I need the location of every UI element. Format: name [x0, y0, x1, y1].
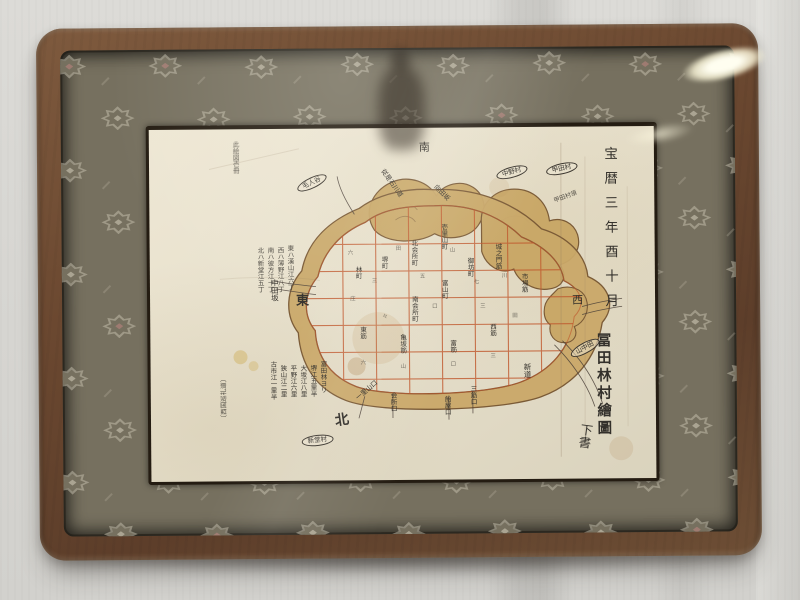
- map-label: 六: [348, 250, 354, 256]
- mat-motif: [727, 465, 738, 489]
- map-label: 三: [480, 303, 486, 309]
- mat-motif: [60, 470, 89, 494]
- map-title: 冨田林村繪圖: [594, 332, 611, 437]
- mat-dash: [488, 490, 496, 499]
- draft-note: 下書: [576, 423, 593, 450]
- mat-dash: [726, 124, 734, 133]
- map-label: 林町: [354, 266, 361, 279]
- map-label: 狭山江二里: [279, 365, 287, 398]
- map-label: 北会所町: [410, 240, 417, 266]
- mat-motif: [296, 521, 330, 537]
- map-label: 三: [372, 278, 378, 284]
- map-label: 六: [361, 360, 367, 366]
- mat-dash: [727, 332, 735, 341]
- map-label: 五: [420, 274, 426, 280]
- mat-motif: [677, 206, 711, 230]
- map-label: 三: [490, 353, 496, 359]
- map-label: 川: [502, 273, 508, 279]
- mat-dash: [102, 181, 110, 190]
- mat-motif: [392, 522, 426, 537]
- mat-motif: [60, 366, 89, 390]
- map-label: 庄: [350, 296, 356, 302]
- mat-motif: [148, 54, 182, 78]
- map-label: 西ハ薄野江八丁: [276, 247, 284, 293]
- mat-motif: [532, 51, 566, 75]
- map-label: 亀坂筋: [398, 334, 405, 354]
- mat-motif: [436, 53, 470, 77]
- mat-motif: [680, 518, 714, 537]
- compass-south: 南: [419, 142, 430, 154]
- mat-motif: [727, 361, 738, 385]
- mat-motif: [679, 414, 713, 438]
- map-date-column: 宝暦三年酉十月: [601, 146, 617, 318]
- map-paper: 宝暦三年酉十月 冨田林村繪圖 下書 東 北 西 南 中田坂東ハ漢山江六丁西ハ薄野…: [149, 126, 657, 482]
- mat-dash: [677, 73, 685, 82]
- mat-motif: [244, 55, 278, 79]
- mat-motif: [101, 210, 135, 234]
- mat-motif: [60, 262, 88, 286]
- map-label: 富山町: [440, 280, 447, 300]
- map-label: 会所口: [389, 392, 396, 412]
- map-label: 七: [474, 279, 480, 285]
- map-label: 平野江六里: [289, 365, 297, 398]
- map-label: 南会所町: [410, 296, 417, 322]
- mat-dash: [726, 228, 734, 237]
- mat-motif: [200, 523, 234, 536]
- mat-motif: [724, 49, 738, 73]
- mat-dash: [392, 491, 400, 500]
- mat-motif: [725, 153, 738, 177]
- map-label: 城之門筋: [494, 243, 501, 269]
- mat-dash: [678, 177, 686, 186]
- map-label: 東筋: [358, 326, 365, 339]
- mat-motif: [102, 314, 136, 338]
- mat-dash: [680, 385, 688, 394]
- mat-dash: [104, 389, 112, 398]
- compass-west: 西: [572, 295, 583, 307]
- mat-dash: [680, 488, 688, 497]
- map-label: 富田林ヨリ: [319, 361, 327, 394]
- mat-dash: [679, 281, 687, 290]
- map-label: 口: [451, 362, 457, 368]
- mat-motif: [103, 418, 137, 442]
- map-label: 〔西国巡礼道〕: [221, 376, 229, 422]
- mat-motif: [60, 54, 86, 78]
- mat-dash: [104, 493, 112, 502]
- map-label: 北ハ新堂江五丁: [256, 247, 264, 293]
- map-label: 富筋: [448, 340, 455, 353]
- mat-motif: [677, 102, 711, 126]
- mat-dash: [101, 77, 109, 86]
- mat-motif: [678, 310, 712, 334]
- mat-dash: [296, 492, 304, 501]
- wooden-picture-frame: 宝暦三年酉十月 冨田林村繪圖 下書 東 北 西 南 中田坂東ハ漢山江六丁西ハ薄野…: [36, 23, 762, 561]
- map-label: 古市江一里半: [269, 361, 277, 400]
- mat-dash: [197, 76, 205, 85]
- map-label: 御坊町: [466, 257, 473, 277]
- compass-north: 北: [334, 412, 350, 430]
- mat-dash: [293, 76, 301, 85]
- mat-motif: [101, 106, 135, 130]
- mat-dash: [581, 73, 589, 82]
- mat-motif: [726, 257, 738, 281]
- mat-motif: [60, 158, 87, 182]
- map-label: 壱里山町: [439, 224, 446, 250]
- mat-motif: [628, 52, 662, 76]
- map-label: 堺江五里半: [309, 365, 317, 398]
- map-label: 山: [401, 364, 407, 370]
- map-label: 東ハ漢山江六丁: [286, 245, 294, 291]
- mat-motif: [340, 52, 374, 76]
- mat-motif: [104, 522, 138, 537]
- mat-dash: [200, 492, 208, 501]
- map-label: 々: [382, 314, 388, 320]
- map-label: 堺町: [380, 256, 387, 269]
- mat-dash: [103, 285, 111, 294]
- mat-dash: [728, 436, 736, 445]
- map-label: 三筋口: [469, 385, 476, 405]
- map-label: 此絵図壱冊: [231, 141, 239, 174]
- mat-dash: [584, 489, 592, 498]
- mat-motif: [584, 520, 618, 536]
- patterned-mat: 宝暦三年酉十月 冨田林村繪圖 下書 東 北 西 南 中田坂東ハ漢山江六丁西ハ薄野…: [60, 45, 738, 536]
- map-label: 田: [512, 313, 518, 319]
- photo-of-framed-map: 宝暦三年酉十月 冨田林村繪圖 下書 東 北 西 南 中田坂東ハ漢山江六丁西ハ薄野…: [0, 0, 800, 600]
- map-label: 飴屋口: [443, 396, 450, 416]
- map-label: 山: [450, 248, 456, 254]
- map-label: 市場筋: [520, 273, 527, 293]
- map-label: 口: [432, 304, 438, 310]
- map-label: 田: [396, 246, 402, 252]
- mat-dash: [389, 75, 397, 84]
- map-label: 南ハ彼方江十丁: [266, 247, 274, 293]
- mat-dash: [485, 74, 493, 83]
- map-label: 西筋: [488, 323, 495, 336]
- map-label: 新道: [523, 363, 532, 378]
- mat-motif: [488, 519, 522, 537]
- map-label: 大坂江八里: [299, 365, 307, 398]
- compass-east: 東: [296, 295, 309, 310]
